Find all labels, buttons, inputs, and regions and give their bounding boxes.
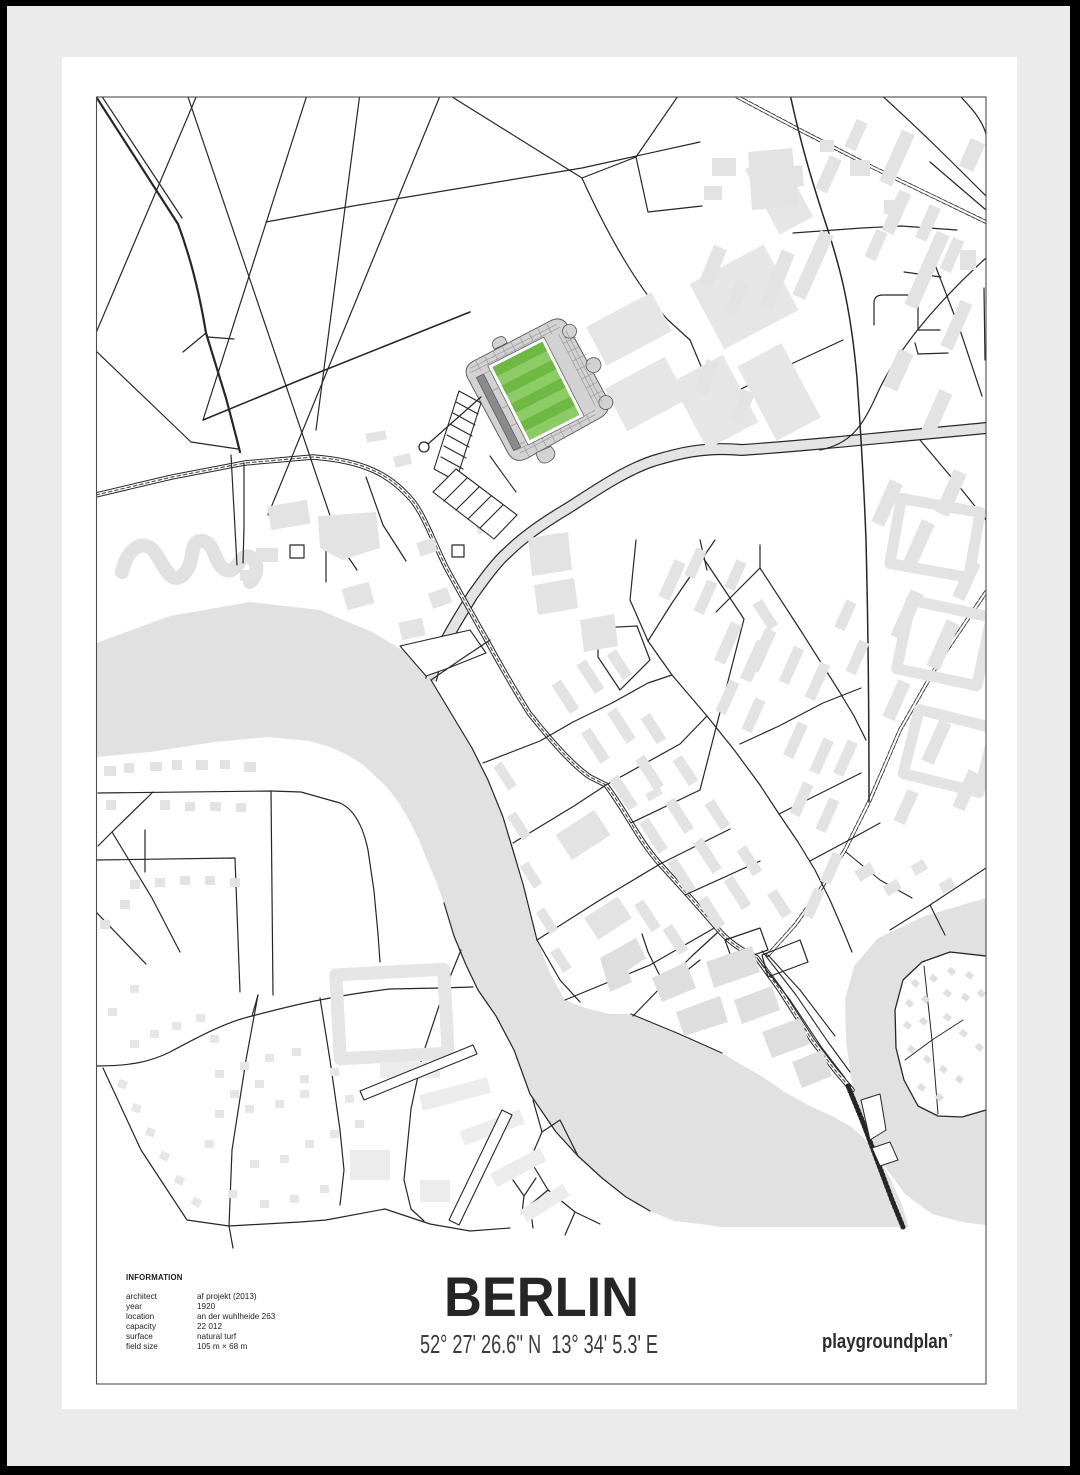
svg-text:105 m × 68 m: 105 m × 68 m xyxy=(197,1342,247,1351)
svg-text:an der wuhlheide 263: an der wuhlheide 263 xyxy=(197,1312,276,1321)
svg-text:22 012: 22 012 xyxy=(197,1322,222,1331)
svg-text:INFORMATION: INFORMATION xyxy=(126,1273,183,1282)
svg-text:capacity: capacity xyxy=(126,1322,157,1331)
svg-text:playgroundplan: playgroundplan xyxy=(822,1331,948,1353)
svg-text:surface: surface xyxy=(126,1332,153,1341)
svg-text:af projekt (2013): af projekt (2013) xyxy=(197,1292,257,1301)
svg-text:architect: architect xyxy=(126,1292,158,1301)
svg-text:52° 27' 26.6'' N 13° 34' 5.3': 52° 27' 26.6'' N 13° 34' 5.3' E xyxy=(420,1329,658,1359)
svg-text:natural turf: natural turf xyxy=(197,1332,237,1341)
svg-text:year: year xyxy=(126,1302,142,1311)
svg-text:BERLIN: BERLIN xyxy=(444,1265,639,1328)
svg-text:field size: field size xyxy=(126,1342,158,1351)
svg-text:°: ° xyxy=(949,1332,953,1342)
svg-text:1920: 1920 xyxy=(197,1302,216,1311)
svg-text:location: location xyxy=(126,1312,155,1321)
